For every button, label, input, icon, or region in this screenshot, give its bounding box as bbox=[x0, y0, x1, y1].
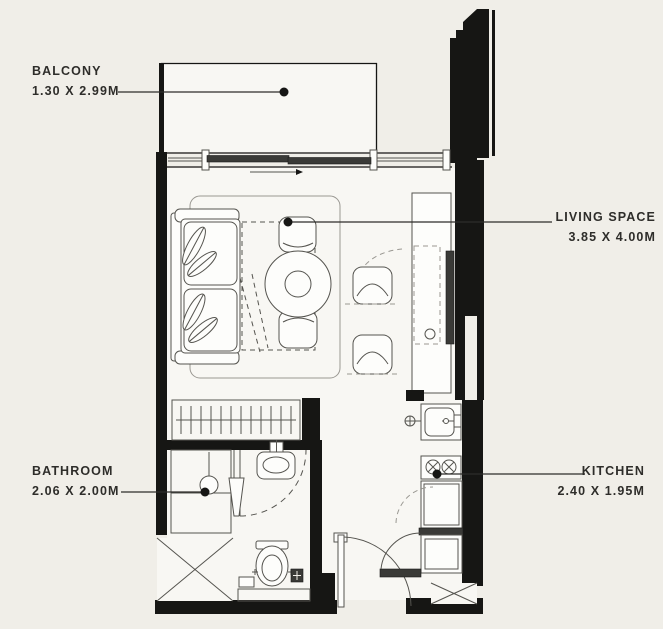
balcony-leader-dot bbox=[280, 88, 289, 97]
balcony-label: BALCONY 1.30 X 2.99M bbox=[32, 61, 120, 101]
bathroom-label: BATHROOM 2.06 X 2.00M bbox=[32, 461, 120, 501]
bathroom-top-wall bbox=[156, 440, 322, 450]
balcony-dimensions: 1.30 X 2.99M bbox=[32, 81, 120, 101]
bathroom-name: BATHROOM bbox=[32, 461, 120, 481]
washing-machine bbox=[421, 535, 462, 573]
lounge-chair-upper bbox=[353, 267, 392, 304]
sliding-panel bbox=[288, 158, 371, 165]
balcony-floor bbox=[164, 64, 376, 152]
kitchen-right-wall bbox=[462, 400, 483, 586]
kitchen-sink bbox=[425, 408, 454, 436]
floor-plan: BALCONY 1.30 X 2.99M LIVING SPACE 3.85 X… bbox=[0, 0, 663, 629]
sliding-panel bbox=[207, 156, 289, 163]
right-wall bbox=[455, 160, 484, 316]
round-dining-table bbox=[265, 251, 331, 317]
sink-tap bbox=[454, 415, 461, 427]
lounge-chair-lower bbox=[353, 335, 392, 374]
toilet bbox=[256, 546, 288, 586]
bottom-wall-left bbox=[155, 600, 337, 614]
living-space-dimensions: 3.85 X 4.00M bbox=[556, 227, 656, 247]
bathroom-dimensions: 2.06 X 2.00M bbox=[32, 481, 120, 501]
sofa bbox=[171, 209, 240, 364]
bathroom-leader-dot bbox=[201, 488, 210, 497]
kitchen-label: KITCHEN 2.40 X 1.95M bbox=[557, 461, 645, 501]
kitchen-dimensions: 2.40 X 1.95M bbox=[557, 481, 645, 501]
kitchen-name: KITCHEN bbox=[557, 461, 645, 481]
living-space-name: LIVING SPACE bbox=[556, 207, 656, 227]
balcony-side-wall bbox=[159, 63, 164, 153]
living-space-label: LIVING SPACE 3.85 X 4.00M bbox=[556, 207, 656, 247]
kitchen-leader-dot bbox=[433, 470, 442, 479]
console-counter bbox=[412, 193, 451, 393]
balcony-name: BALCONY bbox=[32, 61, 120, 81]
tv bbox=[446, 251, 454, 344]
living-leader-dot bbox=[284, 218, 293, 227]
left-wall bbox=[156, 152, 167, 535]
service-shaft-kitchen bbox=[431, 583, 477, 604]
top-right-column bbox=[450, 9, 489, 163]
service-shaft-left bbox=[157, 538, 233, 601]
fridge bbox=[421, 481, 462, 528]
